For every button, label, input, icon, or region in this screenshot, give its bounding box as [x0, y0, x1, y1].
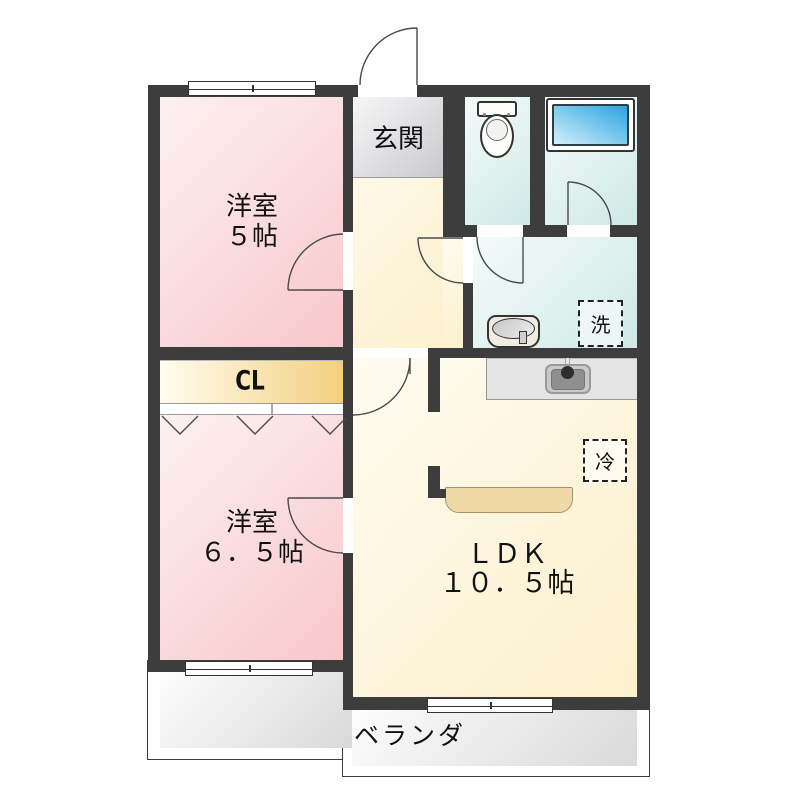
room5-name: 洋室 [226, 192, 278, 222]
bathtub-water [552, 104, 629, 146]
washbasin-bowl [492, 318, 535, 339]
wall-toilet-bath [530, 97, 545, 225]
toilet-door-opening [477, 225, 523, 237]
refrigerator-box: 冷 [583, 439, 627, 482]
wall-kitchen-stub-upper [428, 348, 440, 412]
window-room65 [185, 661, 313, 676]
room5-label: 洋室 ５帖 [226, 192, 278, 252]
entrance-label: 玄関 [372, 119, 424, 156]
room5-door-opening [343, 232, 353, 290]
room65-door-opening [343, 498, 353, 553]
wall-left-outer [148, 85, 160, 672]
washroom-door-opening [463, 237, 473, 283]
closet-folding-door-track [160, 403, 343, 415]
wall-room5-closet [148, 347, 353, 360]
wall-kitchen-stub-return [440, 489, 446, 498]
toilet-seat [486, 119, 508, 141]
wall-room5-hall-upper [343, 97, 353, 232]
kitchen-island-counter [445, 487, 573, 513]
refrigerator-label: 冷 [595, 446, 615, 475]
room65-label: 洋室 ６．５帖 [200, 508, 304, 568]
wall-right-outer [637, 85, 650, 710]
room65-name: 洋室 [200, 508, 304, 538]
window-ldk [427, 698, 553, 713]
bath-door-opening [567, 225, 610, 237]
washing-machine-box: 洗 [578, 300, 623, 347]
wall-hall-toilet [443, 85, 465, 237]
wall-room5-hall-lower [343, 290, 353, 498]
closet-label: CL [235, 366, 265, 397]
wall-room65-ldk [343, 553, 353, 710]
veranda-label: ベランダ [354, 716, 466, 752]
washing-machine-label: 洗 [591, 309, 611, 338]
floor-plan: 洗 冷 玄関 洋室 ５帖 CL 洋室 ６．５帖 ＬＤＫ １０．５帖 ベランダ [0, 0, 800, 800]
ldk-floor [353, 358, 637, 697]
room65-size: ６．５帖 [200, 538, 304, 568]
kitchen-faucet-knob [561, 366, 574, 379]
window-room5 [188, 81, 316, 96]
hallway-floor-extension [443, 237, 463, 348]
entrance-door-opening [358, 85, 417, 97]
ldk-name: ＬＤＫ [440, 540, 575, 569]
entrance-door-arc [360, 28, 417, 85]
washbasin-faucet [519, 331, 527, 344]
wall-hall-washroom [463, 283, 473, 358]
room5-size: ５帖 [226, 222, 278, 252]
toilet-bolt-right [507, 113, 510, 116]
veranda-deck-left [160, 672, 352, 748]
toilet-bolt-left [483, 113, 486, 116]
wall-washroom-ldk [428, 348, 650, 358]
hall-ldk-doorway [353, 348, 428, 358]
ldk-size: １０．５帖 [440, 569, 575, 598]
wall-kitchen-stub-lower [428, 466, 440, 498]
wall-toilet-bath-bottom [443, 225, 650, 237]
ldk-label: ＬＤＫ １０．５帖 [440, 540, 575, 598]
